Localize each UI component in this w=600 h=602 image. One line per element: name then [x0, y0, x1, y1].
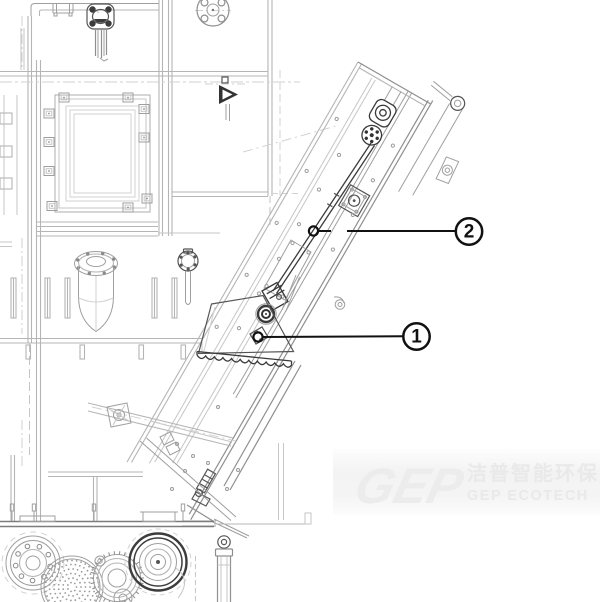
bullet-vessel — [75, 252, 118, 332]
callout-1-leader — [263, 336, 403, 337]
stanchions — [11, 278, 177, 318]
watermark-text-en: GEP ECOTECH — [467, 488, 589, 504]
cad-diagram-page: GEP 洁普智能环保 GEP ECOTECH 2 1 — [0, 0, 600, 602]
callout-2-number: 2 — [464, 222, 475, 243]
rail-tabs — [26, 345, 186, 359]
cad-drawing: GEP 洁普智能环保 GEP ECOTECH 2 1 — [0, 0, 600, 602]
callout-2: 2 — [309, 218, 482, 244]
vertical-hydraulic-cylinder — [216, 536, 233, 602]
frame-fixtures — [75, 0, 247, 332]
machine-base — [0, 438, 311, 602]
callout-1-target-marker — [253, 332, 262, 341]
wedge-fitting — [205, 77, 246, 121]
watermark-text-cn: 洁普智能环保 — [467, 461, 599, 485]
gep-logo-mark: GEP — [349, 458, 469, 514]
top-flange-with-tubes — [87, 4, 114, 61]
panel-bolt-squares — [44, 93, 152, 212]
left-edge-panel — [0, 95, 17, 215]
watermark: GEP 洁普智能环保 GEP ECOTECH — [333, 449, 600, 515]
rotor-drums — [2, 529, 196, 602]
small-flange-stem — [178, 249, 198, 305]
round-flange-4bolt — [195, 0, 231, 26]
callout-1-number: 1 — [411, 327, 422, 348]
access-panel — [55, 95, 150, 212]
